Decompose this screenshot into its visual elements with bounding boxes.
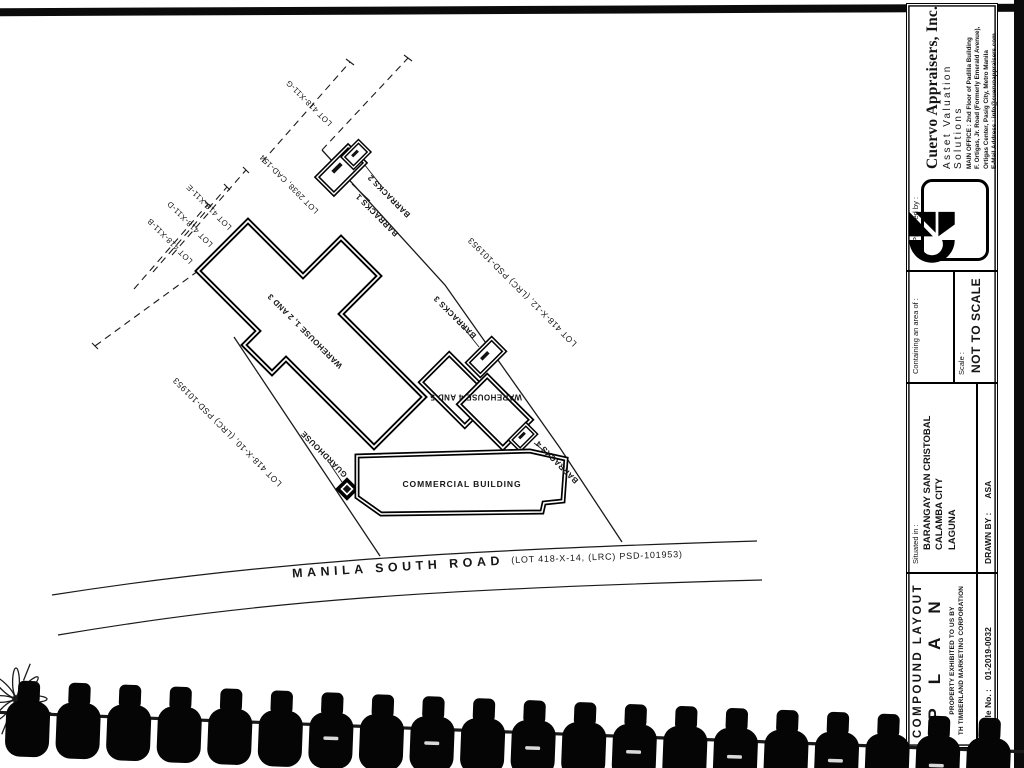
binding-layer [0,0,1024,768]
scanned-sheet: LOT 418-X11-G LOT 2938, CAD-154 LOT 418-… [0,0,1024,768]
binding-comb [0,679,1024,768]
